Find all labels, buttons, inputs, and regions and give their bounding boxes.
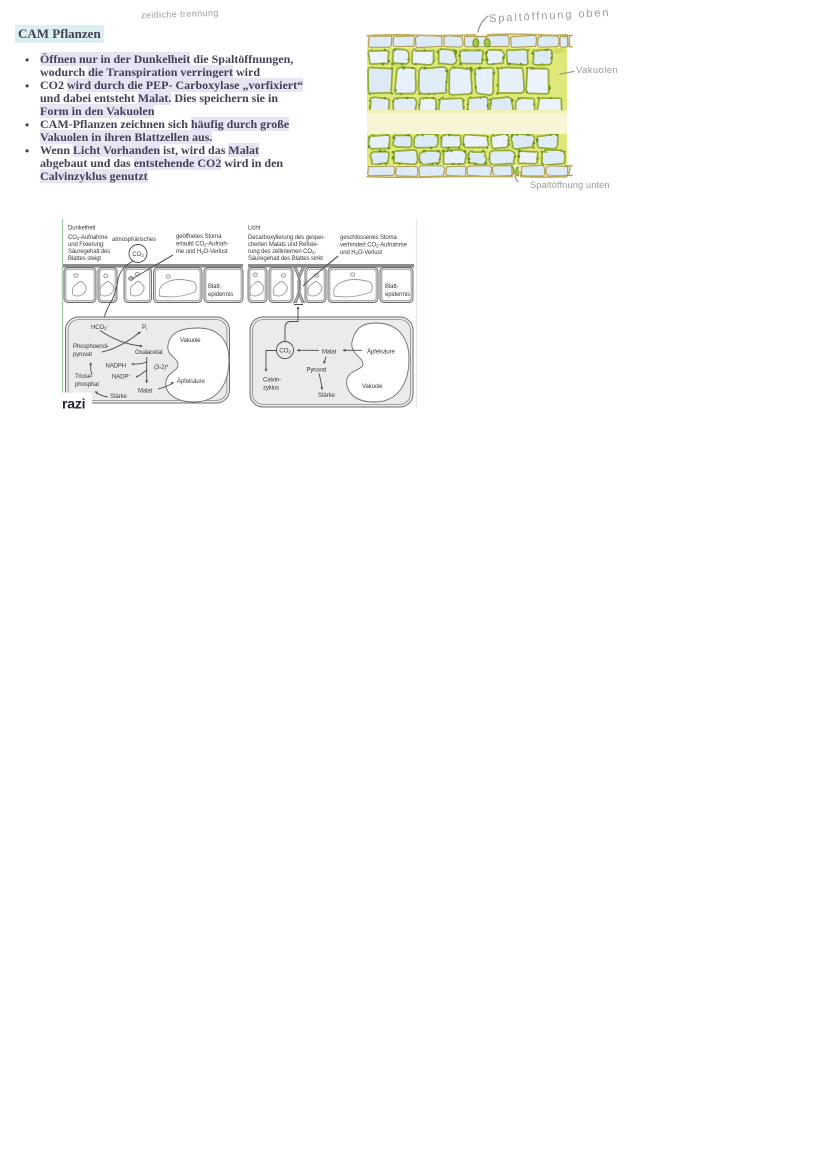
svg-text:CO2​: CO2​	[132, 251, 144, 258]
svg-text:pyruvat: pyruvat	[73, 352, 92, 358]
svg-text:HCO3​-​: HCO3​-​	[91, 323, 108, 331]
svg-text:rung des zellinternen CO2​;: rung des zellinternen CO2​;	[248, 249, 316, 255]
svg-text:Vakuole: Vakuole	[362, 384, 383, 390]
svg-text:Triose-: Triose-	[75, 374, 93, 380]
svg-text:Blatt-: Blatt-	[208, 284, 222, 290]
svg-text:(3-2)*: (3-2)*	[154, 365, 169, 371]
svg-text:epidermis: epidermis	[208, 292, 233, 298]
svg-text:geöffnetes Stoma: geöffnetes Stoma	[176, 234, 222, 240]
svg-text:phosphat: phosphat	[75, 382, 99, 388]
svg-text:Decarboxylierung des gespei-: Decarboxylierung des gespei-	[248, 235, 325, 241]
svg-text:Oxalacetat: Oxalacetat	[135, 350, 163, 356]
svg-text:Malat: Malat	[138, 389, 153, 395]
svg-text:razi: razi	[62, 396, 85, 412]
svg-text:Blatt-: Blatt-	[385, 284, 399, 290]
svg-text:NADPH: NADPH	[106, 364, 127, 370]
svg-text:Phosphoenol-: Phosphoenol-	[73, 344, 109, 350]
svg-text:und H2​O-Verlust: und H2​O-Verlust	[340, 250, 382, 256]
svg-text:epidermis: epidermis	[385, 292, 410, 298]
svg-text:zyklus: zyklus	[263, 386, 279, 392]
svg-text:me und H2​O-Verlust: me und H2​O-Verlust	[176, 249, 228, 255]
svg-text:Säuregehalt des: Säuregehalt des	[68, 249, 110, 255]
svg-text:Dunkelheit: Dunkelheit	[68, 226, 96, 232]
svg-text:Calvin-: Calvin-	[263, 378, 281, 384]
svg-text:und Fixierung:: und Fixierung:	[68, 242, 105, 248]
svg-text:cherten Malats und Refixie-: cherten Malats und Refixie-	[248, 242, 318, 248]
svg-text:CO2​-Aufnahme: CO2​-Aufnahme	[68, 235, 108, 241]
svg-text:Pi​: Pi​	[142, 325, 147, 331]
svg-text:Säuregehalt des Blattes sinkt: Säuregehalt des Blattes sinkt	[248, 256, 323, 262]
svg-text:Äpfelsäure: Äpfelsäure	[177, 378, 205, 385]
svg-text:Äpfelsäure: Äpfelsäure	[367, 349, 395, 356]
svg-text:Licht: Licht	[248, 226, 261, 232]
svg-text:geschlossenes Stoma: geschlossenes Stoma	[340, 235, 398, 241]
svg-text:Stärke: Stärke	[318, 393, 336, 399]
svg-text:Malat: Malat	[322, 350, 337, 356]
svg-text:Vakuole: Vakuole	[180, 338, 201, 344]
svg-text:verhindert CO2​-Aufnahme: verhindert CO2​-Aufnahme	[340, 243, 408, 249]
svg-text:Pyruvat: Pyruvat	[307, 368, 327, 374]
svg-text:Blattes steigt: Blattes steigt	[68, 256, 101, 262]
svg-text:Stärke: Stärke	[110, 394, 128, 400]
svg-text:erlaubt CO2​-Aufnah-: erlaubt CO2​-Aufnah-	[176, 242, 229, 248]
svg-text:atmosphärisches: atmosphärisches	[112, 237, 156, 243]
